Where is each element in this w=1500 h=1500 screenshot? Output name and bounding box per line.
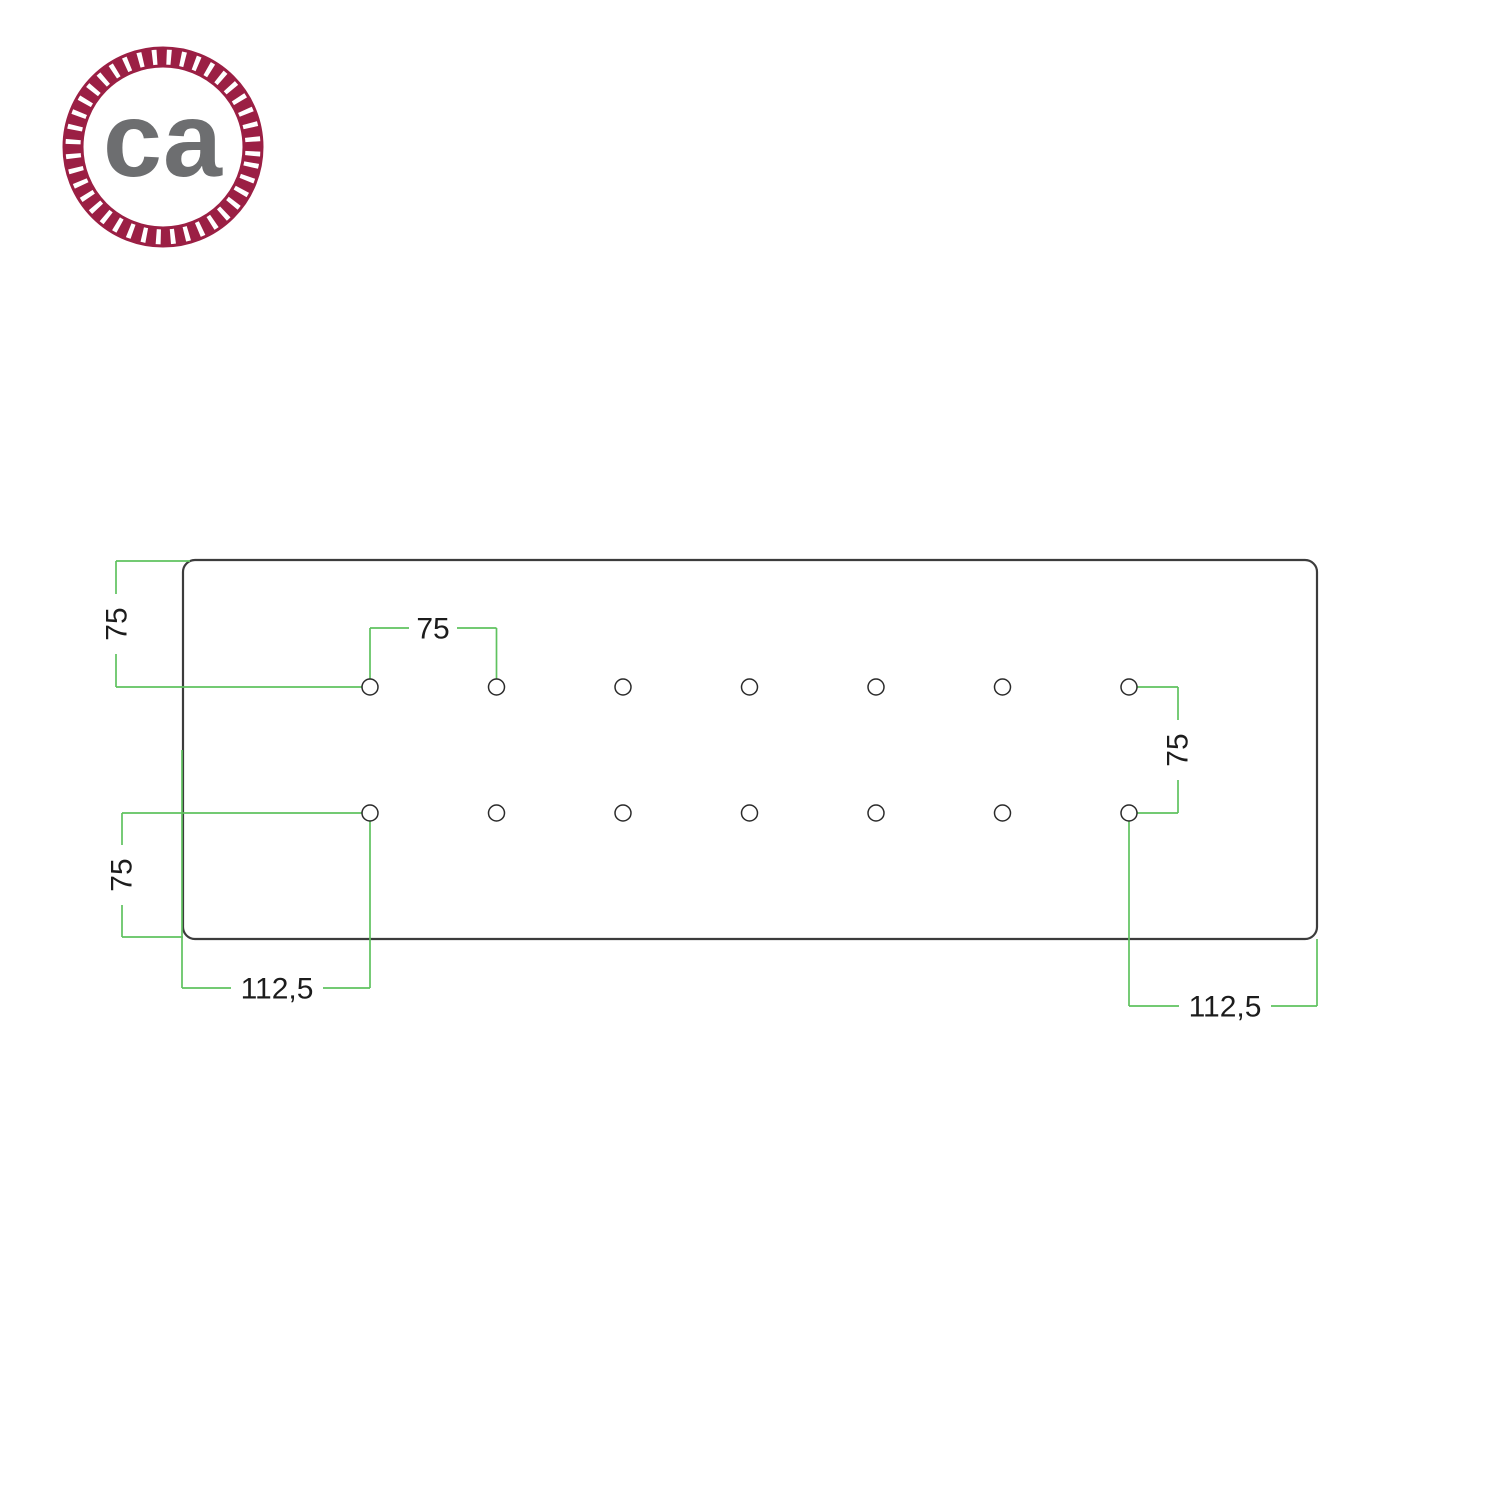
cable-hole — [868, 805, 884, 821]
cable-hole — [615, 679, 631, 695]
cable-hole — [1121, 679, 1137, 695]
cable-hole — [742, 679, 758, 695]
dim-label-row-to-row: 75 — [1162, 733, 1195, 766]
dim-label-plate-top-to-row: 75 — [101, 607, 134, 640]
cable-hole — [489, 805, 505, 821]
cable-hole — [362, 805, 378, 821]
brand-logo-text: ca — [103, 81, 223, 199]
cable-hole — [1121, 805, 1137, 821]
dim-label-left-edge-to-column: 112,5 — [241, 973, 314, 1006]
cable-hole — [615, 805, 631, 821]
technical-drawing-canvas: ca — [0, 0, 1500, 1500]
page: ca — [0, 0, 1500, 1500]
cable-hole — [489, 679, 505, 695]
plate-outline — [183, 560, 1317, 939]
cable-hole — [868, 679, 884, 695]
cable-hole — [995, 679, 1011, 695]
dim-label-hole-to-hole: 75 — [416, 613, 449, 646]
brand-logo: ca — [59, 43, 268, 252]
cable-hole — [362, 679, 378, 695]
dim-label-right-edge-to-column: 112,5 — [1189, 991, 1262, 1024]
dim-label-row-to-plate-bottom: 75 — [106, 858, 139, 891]
cable-hole — [742, 805, 758, 821]
cable-hole — [995, 805, 1011, 821]
